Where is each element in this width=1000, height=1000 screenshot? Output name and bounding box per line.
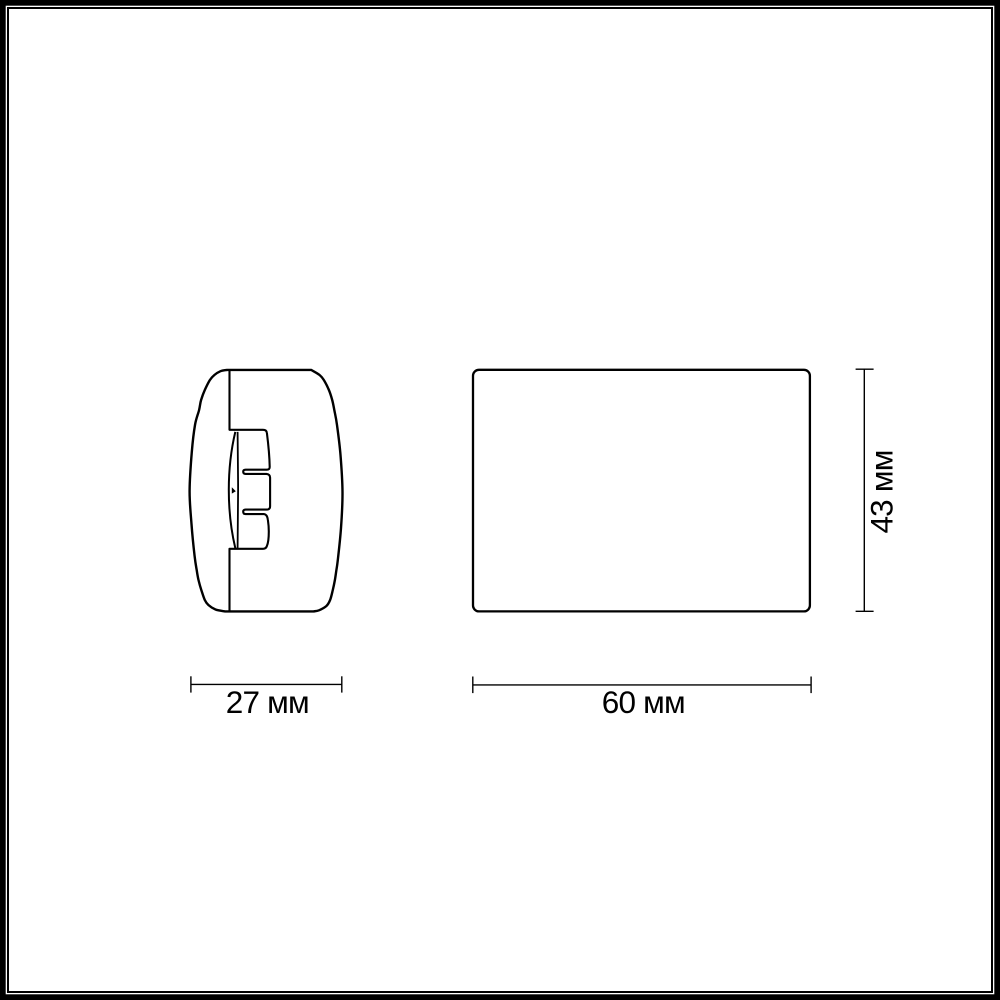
svg-text:43 мм: 43 мм [864, 450, 900, 533]
svg-text:27 мм: 27 мм [226, 684, 309, 720]
svg-text:60 мм: 60 мм [602, 684, 685, 720]
